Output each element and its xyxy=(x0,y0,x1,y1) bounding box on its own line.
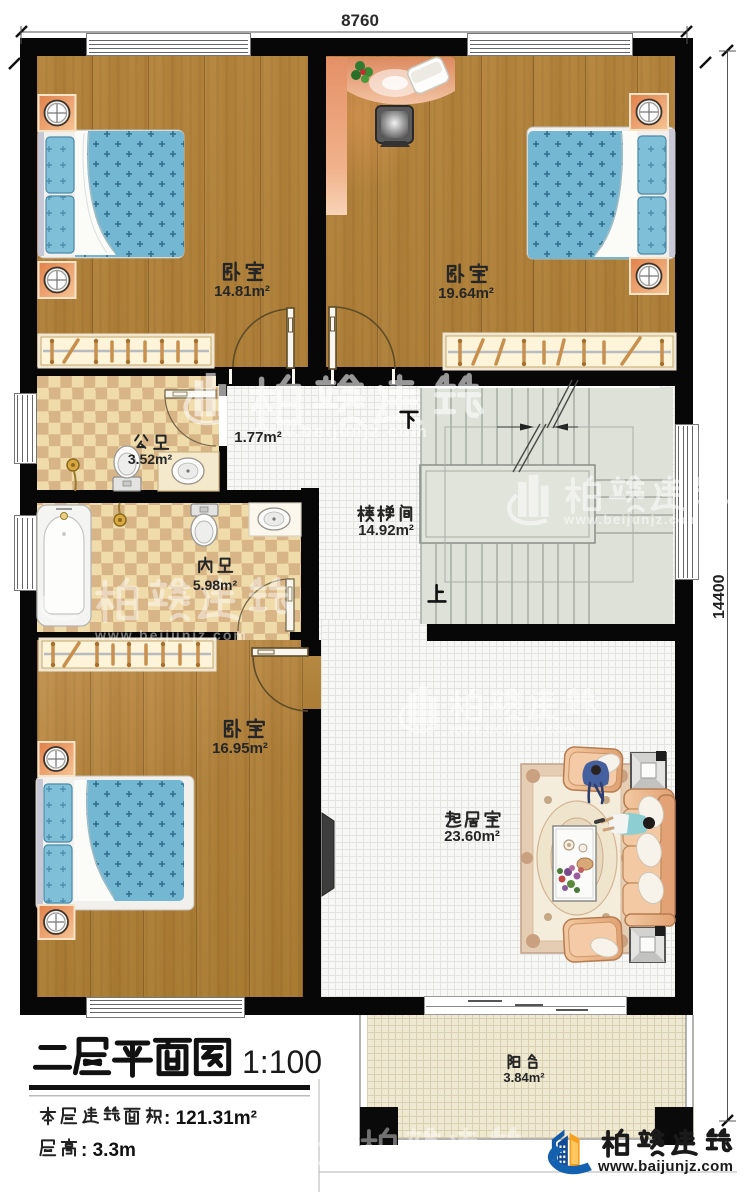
svg-text:: 3.3m: : 3.3m xyxy=(81,1140,136,1161)
svg-text:www.baijunjz.com: www.baijunjz.com xyxy=(597,1158,733,1175)
svg-text:www.beijunjz.com: www.beijunjz.com xyxy=(563,512,700,527)
svg-text:: 121.31m²: : 121.31m² xyxy=(164,1108,257,1129)
svg-text:www.beijunjz.com: www.beijunjz.com xyxy=(359,1174,496,1189)
svg-text:www.beijunjz.com: www.beijunjz.com xyxy=(94,627,248,643)
svg-text:1:100: 1:100 xyxy=(242,1044,322,1080)
svg-text:www.beijunjz.com: www.beijunjz.com xyxy=(448,722,577,736)
